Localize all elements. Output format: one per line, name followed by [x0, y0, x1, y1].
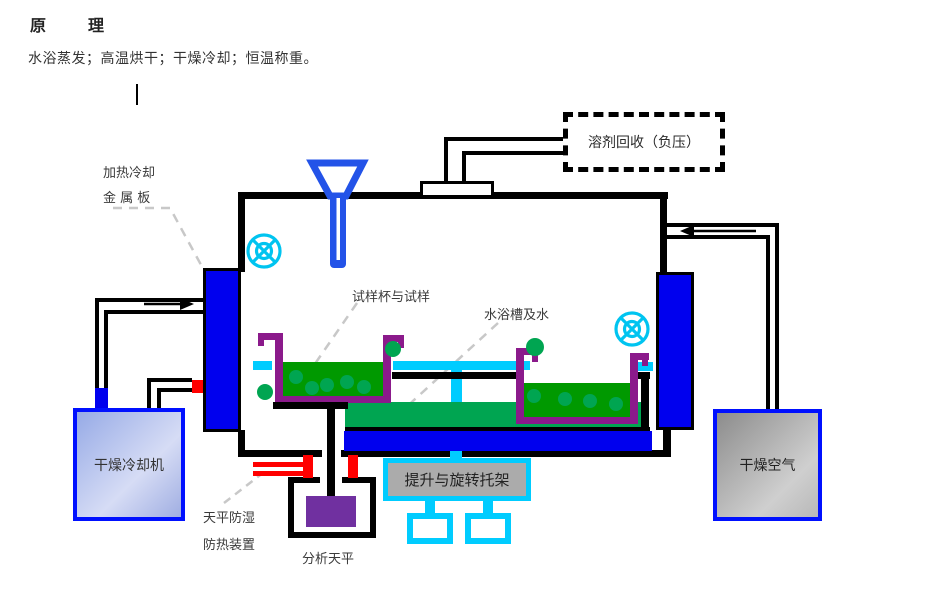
- dryair-pipe-inner-v: [766, 235, 770, 409]
- solvent-recovery-label: 溶剂回收（负压）: [588, 132, 700, 152]
- dry-air-box: 干燥空气: [713, 409, 822, 521]
- cooler-pipe-outer-v: [95, 298, 99, 390]
- funnel-icon: [306, 158, 366, 274]
- airflow-arrow-left: [680, 224, 758, 238]
- metal-plate-label-line1: 加热冷却: [103, 162, 155, 181]
- metal-plate-left: [203, 268, 241, 432]
- sample-cup-label: 试样杯与试样: [352, 286, 430, 305]
- cooler-pipe2-inner-h: [157, 388, 192, 392]
- exhaust-port: [420, 181, 494, 198]
- bath-granule: [558, 392, 572, 406]
- lift-leg-left: [425, 500, 435, 514]
- sample-granule: [289, 370, 303, 384]
- analytical-balance-label: 分析天平: [302, 548, 354, 567]
- exhaust-duct-outer-vertical: [444, 137, 448, 185]
- support-rail-middle: [392, 372, 523, 379]
- cup-left-hook-l-lip: [258, 333, 264, 346]
- lift-rotate-box: 提升与旋转托架: [383, 458, 531, 501]
- exhaust-duct-outer-horizontal: [444, 137, 563, 141]
- cooler-pipe2-outer-v: [147, 378, 151, 408]
- sample-granule-rim: [385, 341, 401, 357]
- bath-granule-rim: [526, 338, 544, 356]
- bath-granule: [527, 389, 541, 403]
- cooler-pipe2-inner-v: [157, 388, 161, 408]
- dry-cooler-label: 干燥冷却机: [94, 455, 164, 475]
- bath-granule: [609, 397, 623, 411]
- red-support-right: [348, 455, 358, 478]
- balance-stem: [327, 409, 335, 500]
- cup-right-wall-l: [516, 355, 524, 424]
- sample-granule-outside: [257, 384, 273, 400]
- exhaust-duct-inner-horizontal: [462, 151, 563, 155]
- lift-foot-left: [407, 513, 453, 544]
- cooler-pipe2-outer-h: [147, 378, 192, 382]
- lift-rotate-label: 提升与旋转托架: [404, 469, 509, 490]
- sample-granule: [320, 378, 334, 392]
- support-bracket-right: [641, 374, 649, 431]
- analytical-balance-body: [306, 496, 356, 527]
- exhaust-duct-inner-vertical: [462, 151, 466, 185]
- cooler-pipe-connector: [95, 388, 108, 408]
- cup-right-bottom: [516, 417, 638, 424]
- metal-plate-label-line2: 金 属 板: [103, 187, 150, 206]
- chamber-right-wall-upper: [660, 192, 667, 276]
- red-bar-upper: [253, 462, 303, 467]
- cup-right-hook-r-lip: [642, 353, 648, 366]
- dryair-pipe-outer-v: [775, 223, 779, 409]
- water-bath-label: 水浴槽及水: [484, 304, 549, 323]
- lift-foot-right: [465, 513, 511, 544]
- lift-leg-right: [483, 500, 493, 514]
- cup-support-plate: [273, 402, 348, 409]
- metal-plate-right: [656, 272, 694, 430]
- fan-icon-right: [612, 309, 652, 349]
- sample-granule: [357, 380, 371, 394]
- water-line-left: [253, 361, 272, 370]
- balance-shield-label-line1: 天平防湿: [203, 507, 255, 526]
- solvent-recovery-box: 溶剂回收（负压）: [563, 112, 725, 172]
- sample-granule: [305, 381, 319, 395]
- plate-inlet-fitting: [192, 380, 203, 393]
- floor-heater-bar: [344, 431, 652, 451]
- cup-left-wall-l: [275, 333, 283, 403]
- airflow-arrow-right: [144, 297, 196, 311]
- bath-granule: [583, 394, 597, 408]
- cup-right-wall-r: [630, 353, 638, 424]
- fan-icon-left: [244, 231, 284, 271]
- document-page: 原 理 水浴蒸发；高温烘干；干燥冷却；恒温称重。 溶剂回收（负压）: [0, 0, 927, 593]
- red-bar-lower: [253, 471, 303, 476]
- water-line-middle: [393, 361, 530, 370]
- sample-granule: [340, 375, 354, 389]
- chamber-bottom-wall-right: [341, 450, 668, 457]
- dry-air-label: 干燥空气: [740, 455, 796, 475]
- balance-shield-label-line2: 防热装置: [203, 534, 255, 553]
- dry-cooler-box: 干燥冷却机: [73, 408, 185, 521]
- red-support-left: [303, 455, 313, 478]
- cooler-pipe-inner-v: [104, 310, 108, 390]
